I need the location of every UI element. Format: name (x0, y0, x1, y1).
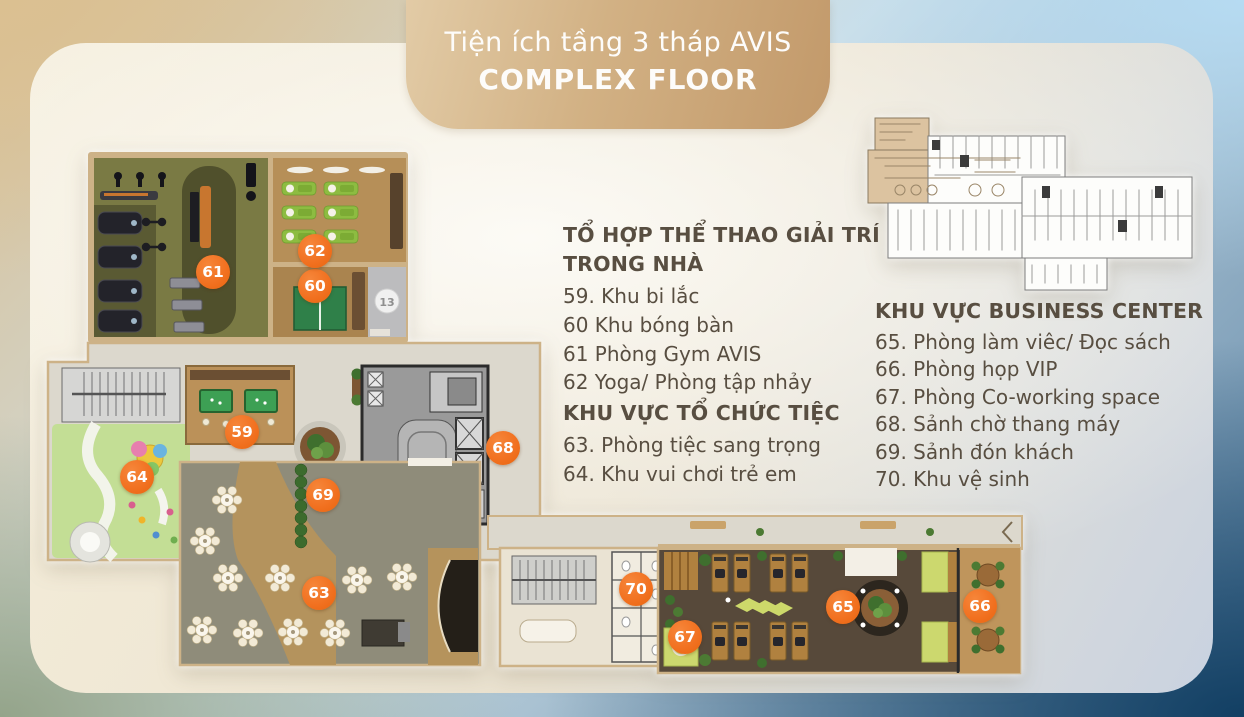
marker-64: 64 (120, 460, 154, 494)
column-badge: 13 (379, 296, 394, 309)
legend-item: 66. Phòng họp VIP (875, 356, 1220, 383)
marker-65: 65 (826, 590, 860, 624)
legend-item: 62 Yoga/ Phòng tập nhảy (563, 368, 893, 397)
round-feature (852, 580, 908, 636)
page-title: Tiện ích tầng 3 tháp AVIS (406, 27, 830, 58)
marker-61: 61 (196, 255, 230, 289)
marker-62: 62 (298, 234, 332, 268)
marker-66: 66 (963, 589, 997, 623)
brochure-page: 13 (0, 0, 1244, 717)
legend-item: 65. Phòng làm viêc/ Đọc sách (875, 329, 1220, 356)
marker-60: 60 (298, 269, 332, 303)
marker-70: 70 (619, 572, 653, 606)
marker-69: 69 (306, 478, 340, 512)
marker-67: 67 (668, 620, 702, 654)
legend-item: 59. Khu bi lắc (563, 282, 893, 311)
kids-play-area (52, 424, 190, 562)
marker-59: 59 (225, 415, 259, 449)
gym-block: 13 (0, 0, 408, 343)
page-subtitle: COMPLEX FLOOR (406, 63, 830, 96)
legend-sports-heading: TỔ HỢP THỂ THAO GIẢI TRÍ TRONG NHÀ (563, 221, 893, 279)
legend-item: 63. Phòng tiệc sang trọng (563, 431, 893, 460)
legend-item: 67. Phòng Co-working space (875, 384, 1220, 411)
service-block (500, 548, 672, 666)
marker-63: 63 (302, 576, 336, 610)
legend-party-heading: KHU VỰC TỔ CHỨC TIỆC (563, 399, 893, 428)
legend-business-heading: KHU VỰC BUSINESS CENTER (875, 297, 1220, 326)
main-staircase (62, 368, 180, 422)
legend-item: 69. Sảnh đón khách (875, 439, 1220, 466)
legend-item: 64. Khu vui chơi trẻ em (563, 460, 893, 489)
legend-item: 61 Phòng Gym AVIS (563, 340, 893, 369)
legend-sports: TỔ HỢP THỂ THAO GIẢI TRÍ TRONG NHÀ 59. K… (563, 221, 893, 397)
legend-item: 60 Khu bóng bàn (563, 311, 893, 340)
legend-business: KHU VỰC BUSINESS CENTER 65. Phòng làm vi… (875, 297, 1220, 493)
legend-party: KHU VỰC TỔ CHỨC TIỆC 63. Phòng tiệc sang… (563, 399, 893, 489)
mini-key-plan (868, 118, 1192, 290)
utility-room: 13 (368, 267, 406, 337)
marker-68: 68 (486, 431, 520, 465)
legend-item: 70. Khu vệ sinh (875, 466, 1220, 493)
legend-item: 68. Sảnh chờ thang máy (875, 411, 1220, 438)
title-banner: Tiện ích tầng 3 tháp AVIS COMPLEX FLOOR (406, 0, 830, 129)
